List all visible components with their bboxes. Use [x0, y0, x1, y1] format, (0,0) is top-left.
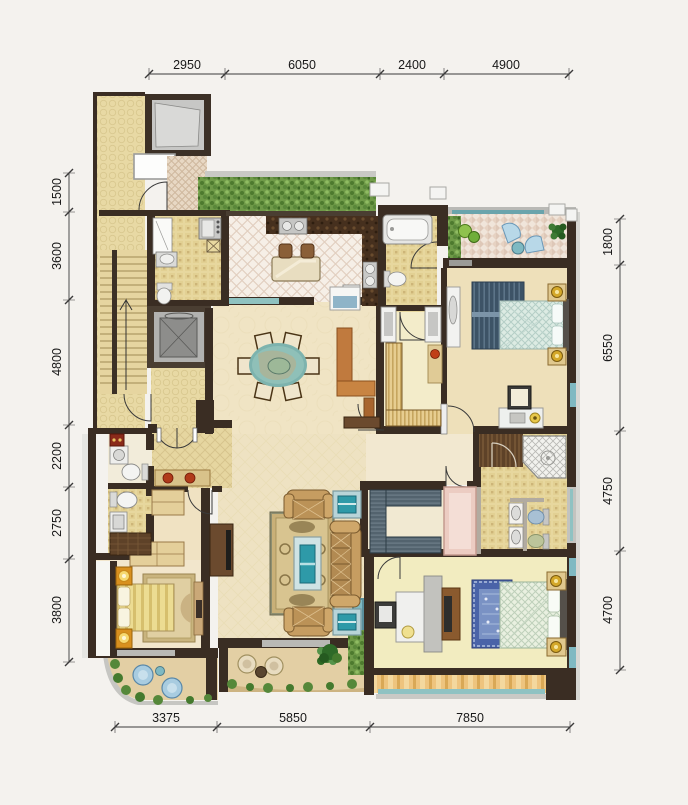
- svg-text:6550: 6550: [601, 334, 615, 362]
- svg-text:3800: 3800: [50, 596, 64, 624]
- svg-text:5850: 5850: [279, 711, 307, 725]
- svg-text:3600: 3600: [50, 242, 64, 270]
- svg-text:4750: 4750: [601, 477, 615, 505]
- svg-text:1800: 1800: [601, 228, 615, 256]
- svg-text:6050: 6050: [288, 58, 316, 72]
- svg-text:3375: 3375: [152, 711, 180, 725]
- svg-text:2200: 2200: [50, 442, 64, 470]
- svg-text:4700: 4700: [601, 596, 615, 624]
- svg-text:7850: 7850: [456, 711, 484, 725]
- svg-text:2950: 2950: [173, 58, 201, 72]
- svg-text:2750: 2750: [50, 509, 64, 537]
- svg-text:4800: 4800: [50, 348, 64, 376]
- svg-text:4900: 4900: [492, 58, 520, 72]
- svg-text:2400: 2400: [398, 58, 426, 72]
- svg-text:1500: 1500: [50, 178, 64, 206]
